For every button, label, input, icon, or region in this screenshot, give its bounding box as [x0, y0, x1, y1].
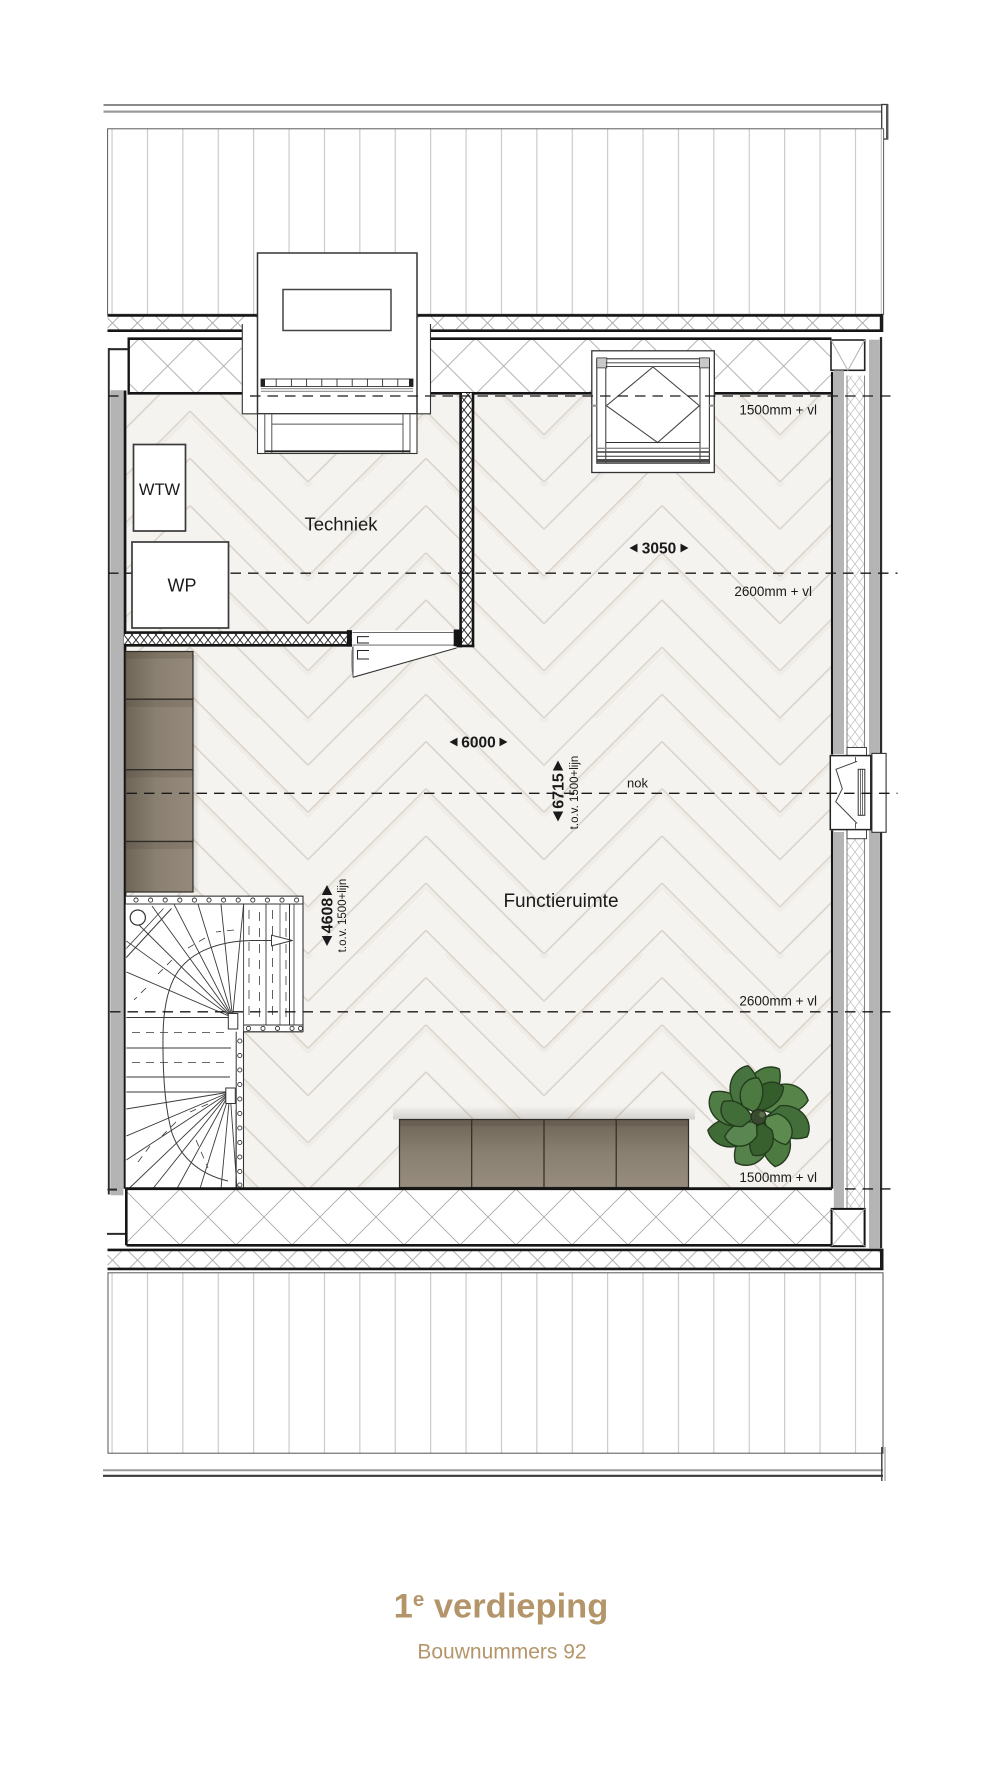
svg-text:Techniek: Techniek [304, 514, 378, 535]
svg-text:1500mm + vl: 1500mm + vl [739, 1170, 817, 1185]
svg-text:nok: nok [627, 776, 648, 791]
svg-text:WTW: WTW [139, 481, 181, 499]
svg-text:2600mm + vl: 2600mm + vl [734, 584, 812, 599]
svg-text:6715: 6715 [551, 773, 568, 809]
svg-text:1500mm + vl: 1500mm + vl [739, 403, 817, 418]
svg-text:Functieruimte: Functieruimte [503, 891, 618, 912]
svg-text:t.o.v. 1500+lijn: t.o.v. 1500+lijn [569, 756, 581, 830]
svg-text:Bouwnummers 92: Bouwnummers 92 [417, 1641, 586, 1664]
svg-text:2600mm + vl: 2600mm + vl [739, 994, 817, 1009]
svg-text:WP: WP [168, 576, 197, 596]
svg-text:3050: 3050 [642, 541, 676, 558]
svg-text:6000: 6000 [461, 735, 495, 752]
svg-text:t.o.v. 1500+lijn: t.o.v. 1500+lijn [337, 879, 349, 953]
svg-text:1e verdieping: 1e verdieping [394, 1588, 609, 1626]
svg-text:4608: 4608 [320, 898, 337, 934]
